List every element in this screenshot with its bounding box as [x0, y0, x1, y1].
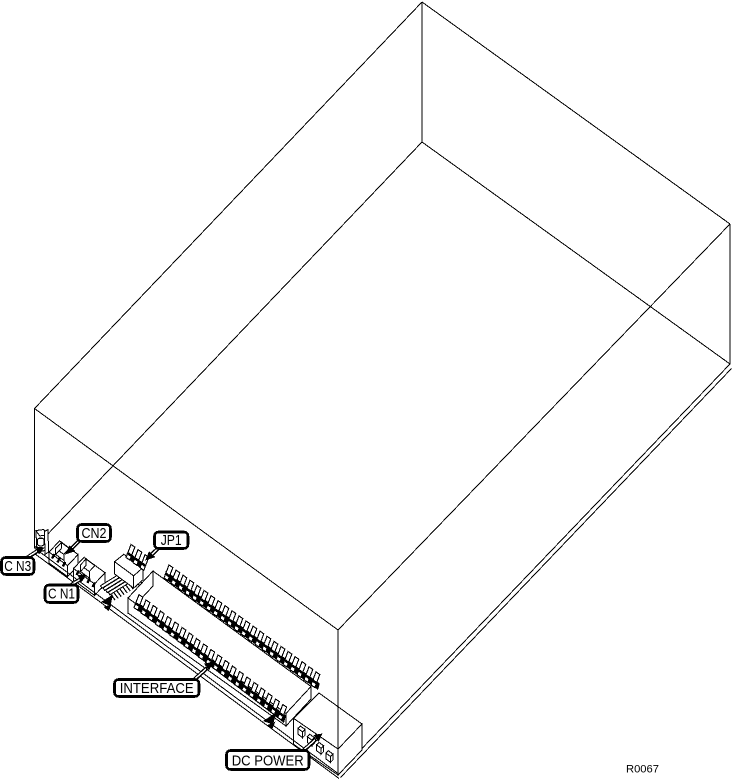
svg-text:C N1: C N1 — [48, 587, 75, 603]
svg-text:C N3: C N3 — [4, 559, 31, 575]
svg-text:DC POWER: DC POWER — [232, 753, 304, 770]
svg-text:JP1: JP1 — [161, 533, 182, 549]
svg-text:R0067: R0067 — [626, 764, 659, 776]
svg-text:INTERFACE: INTERFACE — [120, 681, 194, 697]
svg-text:CN2: CN2 — [82, 526, 107, 542]
